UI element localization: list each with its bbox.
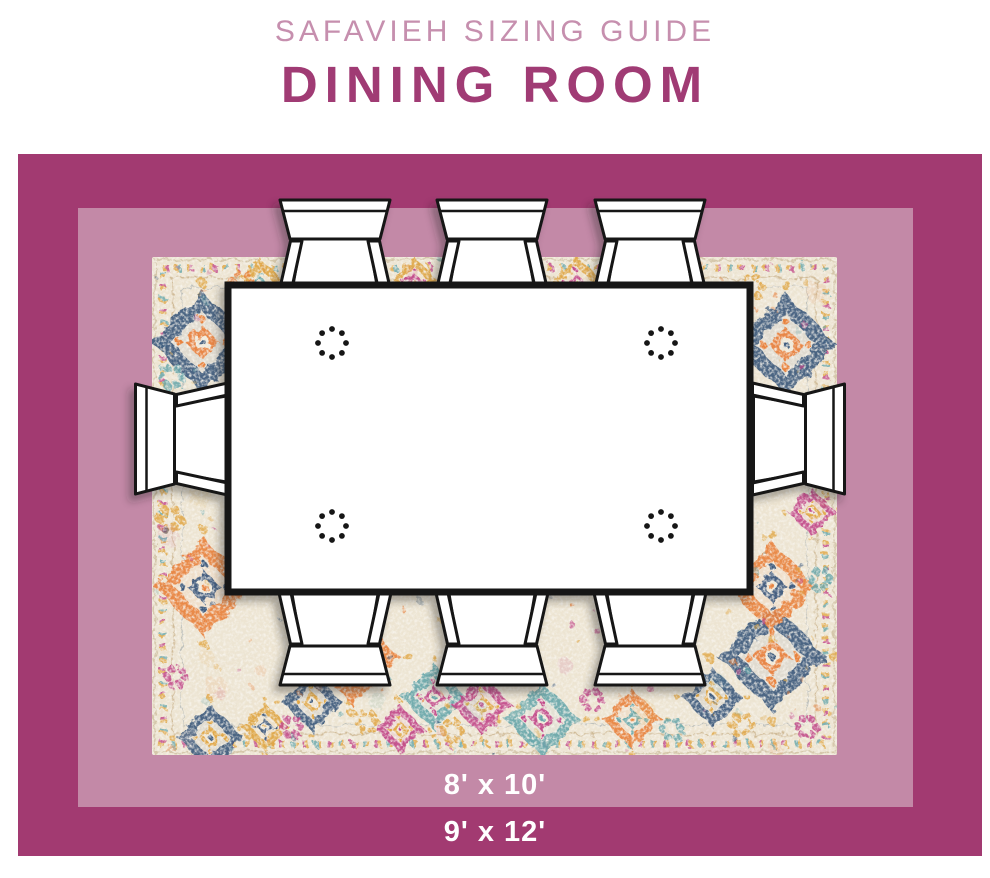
chair-top-2 [436, 200, 548, 292]
inner-size-label: 8' x 10' [0, 769, 990, 802]
chair-left [136, 383, 228, 495]
sizing-guide-page: SAFAVIEH SIZING GUIDE DINING ROOM [0, 0, 990, 878]
chair-bottom-1 [279, 593, 391, 685]
chair-top-1 [279, 200, 391, 292]
chair-bottom-3 [594, 593, 706, 685]
chair-right [753, 383, 845, 495]
chair-top-3 [594, 200, 706, 292]
dining-table [228, 285, 750, 592]
room-scene-graphic [0, 0, 990, 878]
outer-size-label: 9' x 12' [0, 816, 990, 849]
chair-bottom-2 [436, 593, 548, 685]
